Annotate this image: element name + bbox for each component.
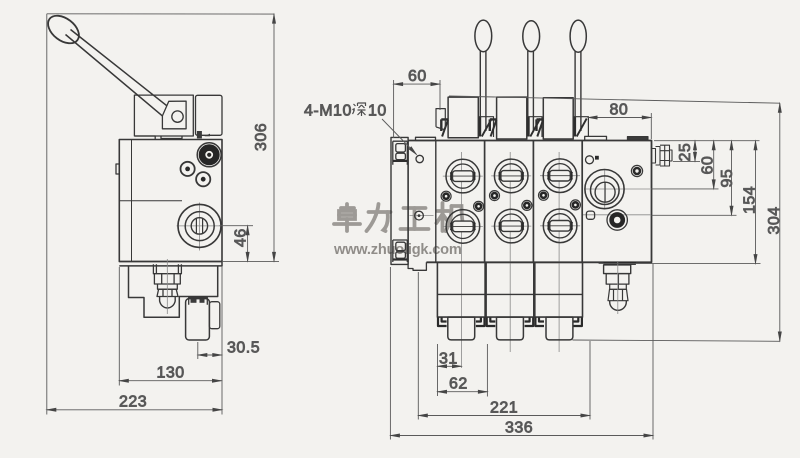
svg-text:46: 46 — [233, 228, 250, 247]
svg-text:25: 25 — [677, 143, 694, 162]
svg-text:80: 80 — [610, 102, 629, 119]
svg-text:31: 31 — [439, 351, 458, 368]
svg-text:60: 60 — [408, 68, 427, 85]
svg-text:60: 60 — [700, 156, 717, 175]
svg-text:130: 130 — [157, 365, 185, 382]
svg-text:336: 336 — [505, 420, 533, 437]
svg-text:154: 154 — [742, 186, 759, 214]
svg-text:62: 62 — [449, 376, 468, 393]
svg-text:223: 223 — [119, 394, 147, 411]
svg-text:306: 306 — [253, 123, 270, 151]
svg-text:221: 221 — [490, 400, 518, 417]
svg-text:304: 304 — [766, 206, 783, 234]
svg-text:95: 95 — [719, 169, 736, 188]
svg-text:4-M10: 4-M10 — [304, 103, 352, 120]
svg-text:10: 10 — [368, 103, 387, 120]
svg-text:30.5: 30.5 — [227, 340, 260, 357]
